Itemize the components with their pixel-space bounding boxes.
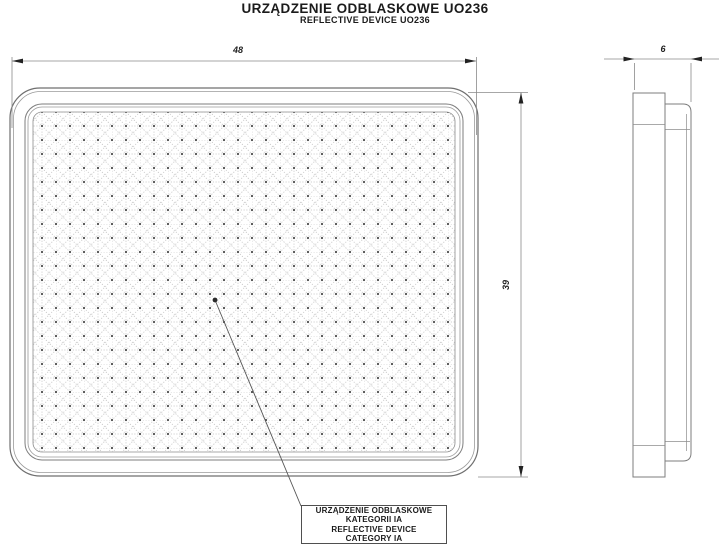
front-view [10, 88, 478, 476]
drawing-linework [0, 0, 720, 550]
callout-line-1: URZĄDZENIE ODBLASKOWE [316, 506, 433, 515]
drawing-subtitle: REFLECTIVE DEVICE UO236 [0, 15, 720, 25]
dimension-height-value: 39 [501, 273, 513, 297]
drawing-title: URZĄDZENIE ODBLASKOWE UO236 [0, 1, 720, 16]
arrowhead-down-icon [519, 466, 524, 477]
leader-dot-icon [213, 298, 218, 303]
dimension-thickness-value: 6 [655, 44, 671, 54]
technical-drawing-sheet: URZĄDZENIE ODBLASKOWE UO236 REFLECTIVE D… [0, 0, 720, 550]
arrowhead-right-icon [465, 59, 476, 64]
reflective-pattern-area [33, 112, 455, 452]
side-view [633, 93, 691, 477]
dimension-width-value: 48 [226, 45, 250, 55]
callout-line-4: CATEGORY IA [346, 534, 403, 543]
callout-label-box: URZĄDZENIE ODBLASKOWE KATEGORII IA REFLE… [301, 505, 447, 544]
arrowhead-right-icon [624, 57, 635, 62]
callout-line-2: KATEGORII IA [346, 515, 402, 524]
arrowhead-left-icon [12, 59, 23, 64]
arrowhead-up-icon [519, 93, 524, 104]
callout-line-3: REFLECTIVE DEVICE [331, 525, 416, 534]
arrowhead-left-icon [691, 57, 702, 62]
